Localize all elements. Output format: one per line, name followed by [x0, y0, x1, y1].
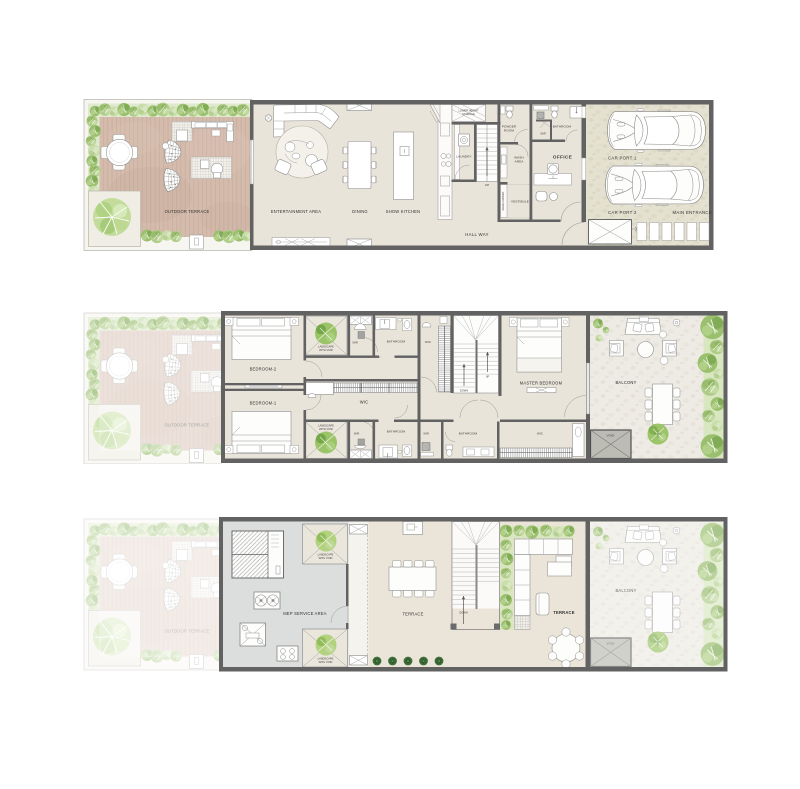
svg-text:BATHROOM: BATHROOM	[459, 432, 478, 436]
svg-text:VESTIBULE: VESTIBULE	[511, 200, 529, 204]
svg-text:WIC: WIC	[537, 432, 544, 436]
svg-text:MASTER BEDROOM: MASTER BEDROOM	[520, 381, 563, 386]
svg-text:OFFICE: OFFICE	[553, 155, 573, 161]
svg-text:BATHROOM: BATHROOM	[387, 340, 406, 344]
svg-text:BATHROOM: BATHROOM	[553, 125, 572, 129]
svg-text:WITH VOID: WITH VOID	[319, 427, 333, 431]
svg-text:HALL WAY: HALL WAY	[465, 232, 489, 237]
svg-text:WIC: WIC	[425, 340, 432, 344]
svg-text:AREA: AREA	[515, 159, 525, 163]
svg-text:DINING: DINING	[352, 209, 368, 214]
svg-text:DOWN: DOWN	[460, 389, 468, 393]
svg-text:UP: UP	[485, 183, 490, 187]
svg-text:UP: UP	[486, 375, 490, 379]
svg-text:SHR: SHR	[540, 132, 546, 136]
svg-text:STORAGE: STORAGE	[462, 112, 475, 116]
svg-text:ENTERTAINMENT AREA: ENTERTAINMENT AREA	[271, 209, 321, 214]
svg-text:LAUNDRY: LAUNDRY	[456, 155, 471, 159]
svg-text:SHR: SHR	[352, 341, 358, 345]
svg-text:CAR PORT 2: CAR PORT 2	[608, 210, 637, 215]
svg-text:SHR: SHR	[423, 432, 429, 436]
svg-text:SHOE CABINET: SHOE CABINET	[501, 191, 505, 211]
svg-text:MAIN ENTRANCE: MAIN ENTRANCE	[673, 210, 712, 215]
svg-text:WIC: WIC	[360, 400, 369, 405]
svg-text:WITH VOID: WITH VOID	[319, 660, 333, 664]
svg-text:ROOM: ROOM	[504, 128, 514, 132]
svg-text:LOWER HEIGHT: LOWER HEIGHT	[458, 109, 478, 113]
svg-text:SHR: SHR	[354, 432, 360, 436]
svg-text:WITH VOID: WITH VOID	[319, 556, 333, 560]
svg-text:TERRACE: TERRACE	[553, 610, 574, 615]
svg-text:TERRACE: TERRACE	[402, 612, 423, 617]
svg-text:MEP SERVICE AREA: MEP SERVICE AREA	[283, 611, 326, 616]
svg-text:BEDROOM-1: BEDROOM-1	[250, 401, 277, 406]
svg-text:BEDROOM-2: BEDROOM-2	[250, 367, 277, 372]
svg-text:SHOW KITCHEN: SHOW KITCHEN	[386, 209, 420, 214]
svg-text:BATHROOM: BATHROOM	[387, 430, 406, 434]
svg-text:DOWN: DOWN	[459, 611, 467, 615]
svg-text:WITH VOID: WITH VOID	[319, 348, 333, 352]
svg-text:CAR PORT 1: CAR PORT 1	[608, 156, 637, 161]
